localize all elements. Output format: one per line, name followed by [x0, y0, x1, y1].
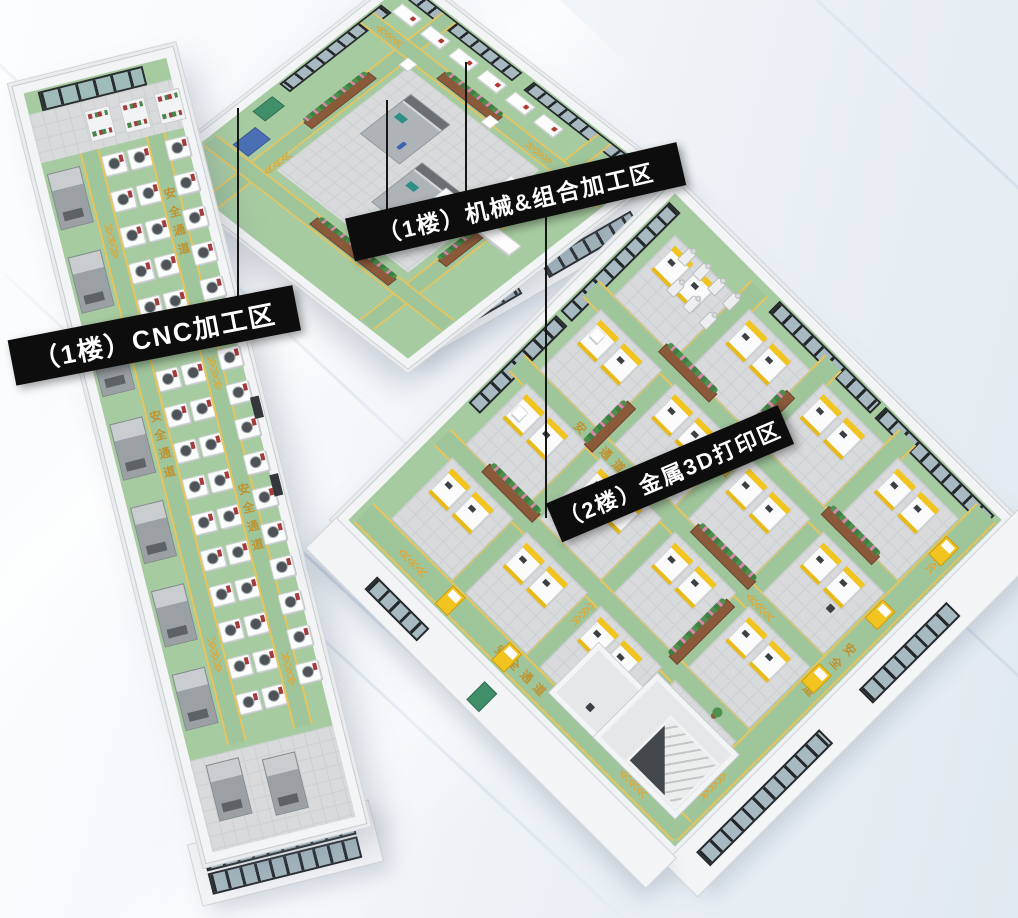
- banner-pole: [237, 108, 239, 322]
- cnc-machine: [182, 205, 209, 231]
- cnc-machine: [234, 415, 261, 441]
- cnc-machine: [243, 450, 270, 476]
- printer-screen: [667, 407, 675, 415]
- cnc-machine: [295, 659, 322, 685]
- cnc-machine-row: [218, 611, 271, 643]
- cnc-grey-machine: [262, 751, 309, 816]
- cnc-machine: [200, 546, 227, 572]
- cnc-machine: [209, 582, 236, 608]
- green-exit-door: [466, 681, 497, 712]
- cnc-machine-row: [155, 360, 208, 392]
- cnc-machine-row: [128, 252, 181, 284]
- cnc-machine: [173, 438, 200, 464]
- printer-screen: [741, 630, 749, 638]
- printer-screen: [691, 579, 699, 587]
- cnc-machine: [119, 223, 146, 249]
- cnc-machine-row: [235, 683, 288, 715]
- cnc-machine-row: [200, 540, 253, 572]
- printer-screen: [593, 630, 601, 638]
- cnc-machine-row: [226, 647, 279, 679]
- parts-shelf-rack: [154, 88, 187, 125]
- printer-screen: [667, 555, 675, 563]
- cnc-machine: [164, 135, 191, 161]
- cnc-machine-row: [191, 504, 244, 536]
- cnc-machine: [190, 240, 217, 266]
- cnc-machine: [191, 510, 218, 536]
- cnc-machine: [110, 187, 137, 213]
- cnc-machine: [235, 689, 262, 715]
- printer-screen: [765, 653, 773, 661]
- printer-screen: [667, 258, 675, 266]
- printer-screen: [765, 356, 773, 364]
- cnc-machine: [173, 170, 200, 196]
- cnc-machine: [260, 519, 287, 545]
- printer-screen: [691, 282, 699, 290]
- cnc-machine: [277, 589, 304, 615]
- cnc-machine: [128, 259, 155, 285]
- cnc-machine: [216, 345, 243, 371]
- printer-screen: [839, 579, 847, 587]
- parts-shelf-rack: [119, 96, 152, 133]
- printer-screen: [816, 407, 824, 415]
- printer-screen: [542, 579, 550, 587]
- green-machine: [252, 96, 285, 121]
- cnc-machine: [286, 624, 313, 650]
- cnc-machine-row: [119, 216, 172, 248]
- printer-screen: [616, 653, 624, 661]
- cnc-machine: [199, 275, 226, 301]
- banner-pole: [545, 208, 547, 518]
- factory-layout-render: ≪≪≪ ≫≫≫ ≫≫≫ ≫≫≫ 安全通道 ≫≫≫ 安全通道 ≫≫≫ 安全通道 ≫…: [0, 0, 1018, 918]
- cnc-machine-row: [110, 181, 163, 213]
- machining-center-machine: [360, 94, 451, 165]
- printer-screen: [890, 481, 898, 489]
- cnc-machine: [269, 554, 296, 580]
- printer-screen: [741, 481, 749, 489]
- printer-screen: [519, 555, 527, 563]
- cnc-machine-row: [164, 396, 217, 428]
- cnc-machine: [226, 654, 253, 680]
- printer-screen: [444, 481, 452, 489]
- cnc-machine: [225, 380, 252, 406]
- parts-shelf-rack: [84, 105, 117, 142]
- printer-screen: [691, 430, 699, 438]
- printer-screen: [741, 333, 749, 341]
- cnc-machine-row: [209, 575, 262, 607]
- cnc-grey-machine: [206, 757, 253, 822]
- printer-screen: [765, 504, 773, 512]
- cnc-machine: [218, 618, 245, 644]
- cnc-machine: [155, 366, 182, 392]
- cnc-machine-row: [101, 145, 154, 177]
- printer-screen: [839, 430, 847, 438]
- cnc-machine: [164, 402, 191, 428]
- cnc-machine: [101, 151, 128, 177]
- cnc-machine-row: [173, 432, 226, 464]
- printer-screen: [913, 504, 921, 512]
- printer-screen: [816, 555, 824, 563]
- cnc-machine-row: [182, 468, 235, 500]
- printer-screen: [616, 356, 624, 364]
- cnc-machine: [182, 474, 209, 500]
- printer-screen: [468, 504, 476, 512]
